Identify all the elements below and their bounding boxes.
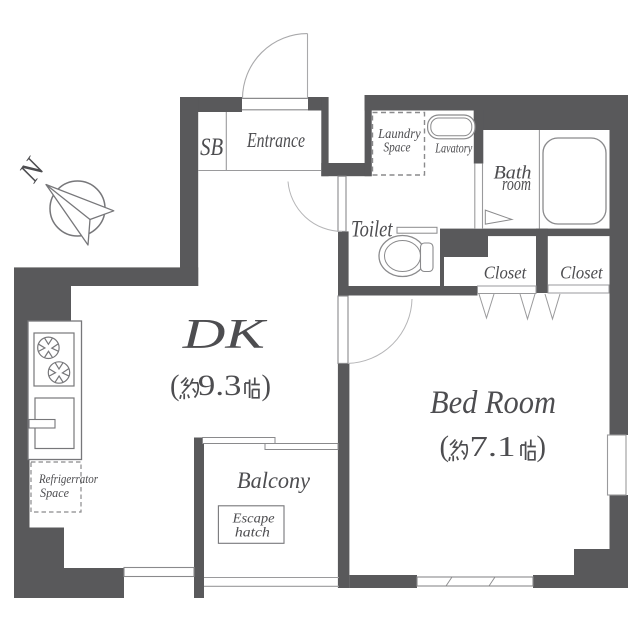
svg-text:SB: SB: [200, 134, 223, 161]
svg-text:): ): [537, 430, 547, 463]
svg-text:9.3: 9.3: [198, 369, 242, 402]
svg-text:Refrigerrator: Refrigerrator: [38, 471, 99, 486]
svg-text:Bed Room: Bed Room: [430, 385, 556, 421]
svg-text:(: (: [170, 369, 180, 402]
svg-text:room: room: [502, 174, 531, 195]
svg-text:7.1: 7.1: [470, 431, 516, 463]
svg-text:Lavatory: Lavatory: [435, 141, 473, 156]
svg-text:Entrance: Entrance: [246, 128, 305, 152]
svg-text:Closet: Closet: [560, 263, 604, 283]
svg-text:hatch: hatch: [235, 525, 270, 540]
svg-text:Space: Space: [40, 485, 69, 500]
svg-text:Toilet: Toilet: [351, 217, 393, 243]
svg-text:Closet: Closet: [484, 263, 528, 283]
svg-text:Balcony: Balcony: [237, 468, 311, 493]
svg-text:(: (: [440, 430, 450, 463]
svg-text:Escape: Escape: [232, 511, 275, 526]
svg-text:Space: Space: [384, 140, 411, 155]
svg-text:DK: DK: [181, 312, 267, 358]
svg-text:): ): [262, 369, 272, 402]
